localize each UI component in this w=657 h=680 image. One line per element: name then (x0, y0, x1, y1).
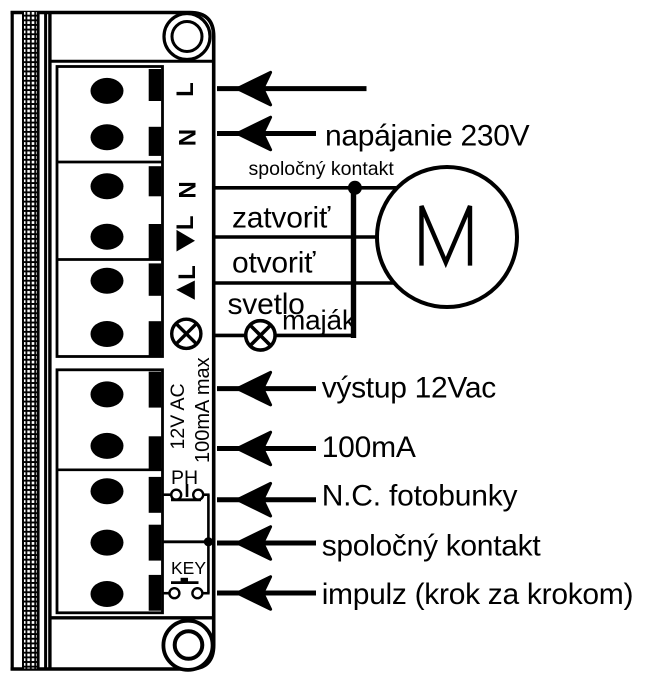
svg-text:spoločný kontakt: spoločný kontakt (322, 530, 542, 563)
svg-text:KEY: KEY (171, 558, 206, 578)
svg-text:L: L (172, 82, 199, 97)
svg-text:100mA: 100mA (322, 431, 416, 464)
svg-text:N.C. fotobunky: N.C. fotobunky (322, 480, 518, 513)
svg-text:100mA max: 100mA max (192, 357, 214, 463)
svg-text:výstup 12Vac: výstup 12Vac (322, 372, 497, 405)
svg-text:napájanie 230V: napájanie 230V (325, 120, 530, 153)
svg-text:N: N (174, 129, 201, 146)
svg-text:L: L (172, 215, 199, 230)
svg-text:otvoriť: otvoriť (232, 247, 316, 280)
svg-text:PH: PH (171, 467, 198, 489)
svg-text:zatvoriť: zatvoriť (232, 202, 331, 235)
svg-text:12V AC: 12V AC (167, 383, 189, 449)
svg-text:maják: maják (282, 305, 357, 336)
svg-text:impulz (krok za krokom): impulz (krok za krokom) (322, 578, 633, 611)
svg-text:L: L (174, 265, 201, 280)
svg-text:N: N (174, 181, 201, 198)
svg-text:spoločný kontakt: spoločný kontakt (249, 158, 395, 180)
